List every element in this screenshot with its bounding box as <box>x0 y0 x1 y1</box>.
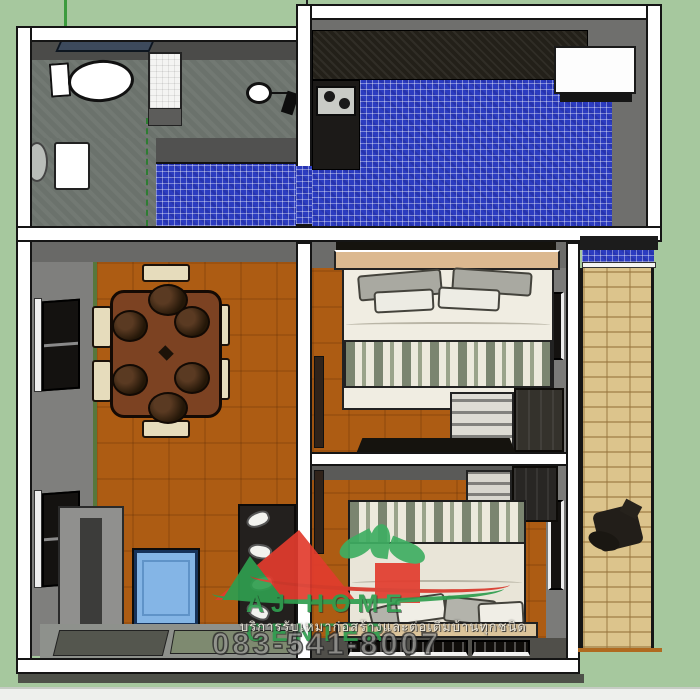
bedrooms-east-wall <box>566 242 580 672</box>
kitchen-counter-top <box>312 30 588 80</box>
hall-divider-wall-face <box>156 138 296 164</box>
washing-machine-top <box>54 142 90 190</box>
bedroom2-door-leaf <box>314 470 324 554</box>
bottom-margin-strip <box>0 687 700 700</box>
south-window-grate <box>472 640 530 656</box>
dining-chair-seat <box>174 362 210 394</box>
coffee-table-inner <box>142 560 190 616</box>
south-window-grate <box>348 640 406 656</box>
outer-wall-bottom <box>16 658 580 674</box>
dining-chair-seat <box>112 310 148 342</box>
house-shadow <box>18 674 584 683</box>
stove-burner <box>339 98 350 109</box>
bed1-blanket-striped <box>344 340 552 388</box>
floorplan-rendering: AJ HOME CENTER บริการรับเหมาก่อสร้างและต… <box>0 0 700 700</box>
outer-wall-kitchen-right <box>646 4 662 240</box>
bed2-blanket-striped <box>350 502 524 544</box>
walkway-awning <box>580 236 658 250</box>
outer-wall-top-bathroom <box>16 26 308 42</box>
bedroom1-door-leaf <box>314 356 324 448</box>
kitchen-floor-tiles <box>360 80 612 240</box>
window-sill <box>34 298 42 392</box>
walkway-tile-strip <box>582 250 654 262</box>
stove-icon <box>316 86 356 116</box>
bed1-sheet-fold <box>346 322 550 328</box>
bed1-pillow-white <box>437 286 500 311</box>
refrigerator-base <box>560 92 632 102</box>
bedroom-divider-wall <box>310 452 568 466</box>
walkway-end-line <box>578 648 662 652</box>
mid-wall-horizontal <box>16 226 662 242</box>
bed1-headboard <box>334 250 560 270</box>
wardrobe <box>514 388 564 452</box>
hall-kitchen-door-opening <box>296 166 312 224</box>
dining-chair-back <box>92 306 112 348</box>
bed2-sheet-fold <box>352 580 522 586</box>
bathroom-floor-left <box>32 138 156 226</box>
dining-chair-seat <box>174 306 210 338</box>
door-swing-dashed-line <box>146 118 148 226</box>
refrigerator-top <box>554 46 636 94</box>
shower-screen <box>148 52 182 110</box>
dining-chair-seat <box>112 364 148 396</box>
window-sill <box>34 490 42 588</box>
sink-basin-icon <box>246 82 272 104</box>
tv-cabinet-inner <box>80 518 102 638</box>
dining-chair-back <box>92 360 112 402</box>
outer-wall-left <box>16 26 32 672</box>
bed1-pillow-white <box>373 288 434 313</box>
hallway-floor-tiles <box>156 164 296 226</box>
shower-screen-side <box>148 108 182 126</box>
outer-wall-top-kitchen <box>296 4 662 20</box>
south-window-grate <box>410 640 468 656</box>
living-north-wall-face <box>32 242 296 262</box>
stove-burner <box>324 91 335 102</box>
walkway-brick-path <box>580 268 654 648</box>
dining-chair-seat <box>148 392 188 424</box>
dining-chair-back <box>142 264 190 282</box>
porch-mat-dark <box>53 630 169 656</box>
bed2-headboard <box>336 622 538 638</box>
porch-mat-green <box>170 630 294 654</box>
